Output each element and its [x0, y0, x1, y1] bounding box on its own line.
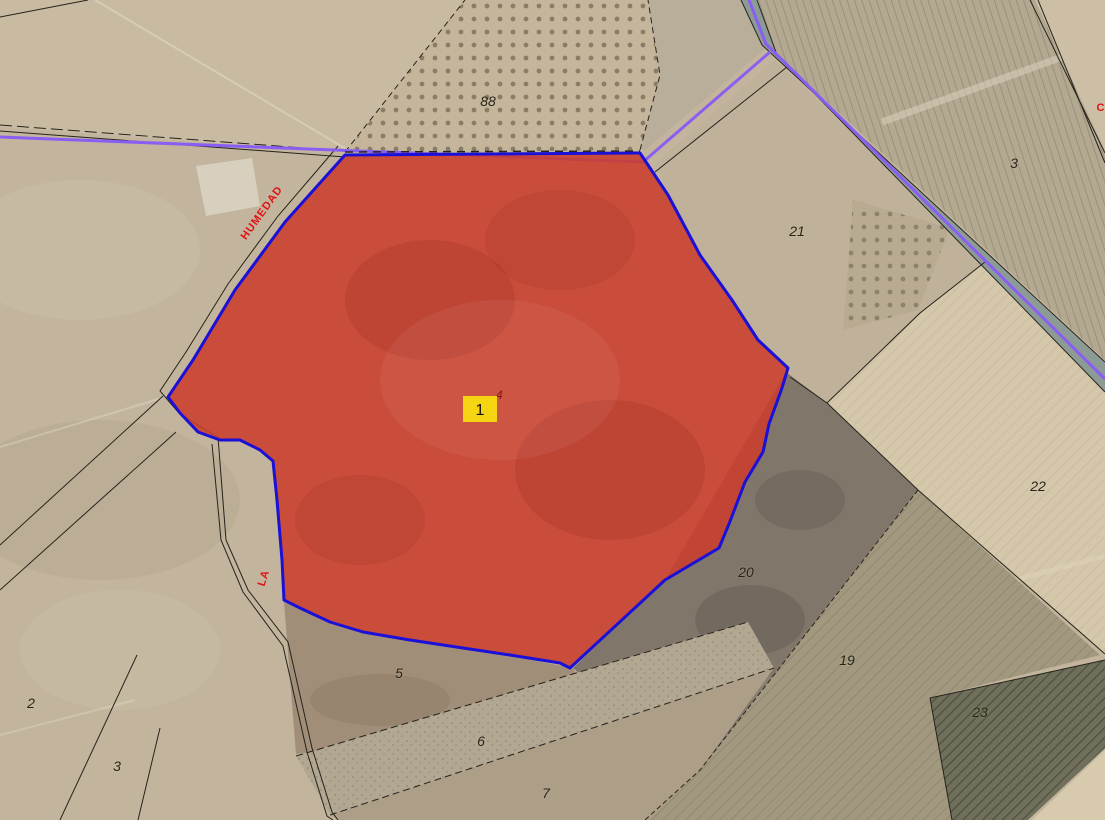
- map-viewport[interactable]: 4 1 882132220192356723HUMEDADLAC: [0, 0, 1105, 820]
- selected-parcel-marker-label: 1: [476, 402, 485, 419]
- map-canvas[interactable]: 4 1: [0, 0, 1105, 820]
- selected-parcel-sub-number: 4: [496, 388, 503, 402]
